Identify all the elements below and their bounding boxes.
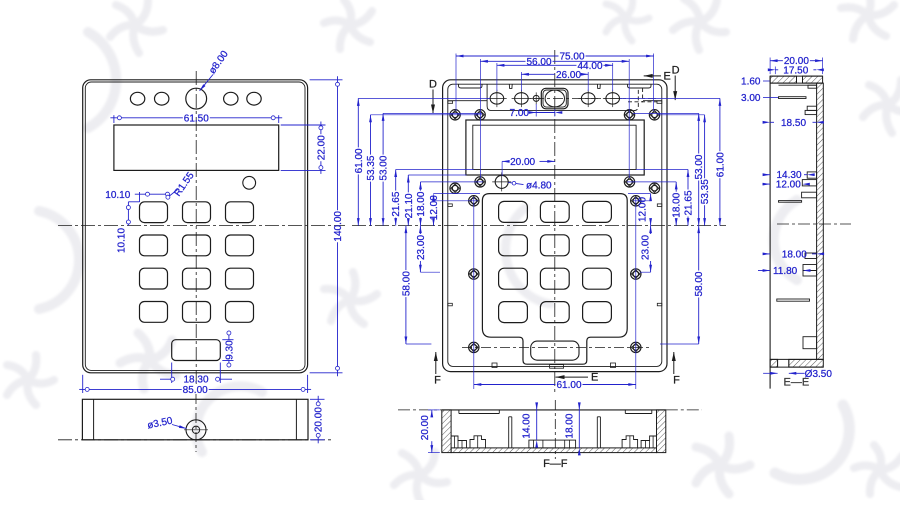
- svg-text:18.00: 18.00: [416, 191, 427, 216]
- svg-text:E—E: E—E: [784, 377, 810, 389]
- svg-text:26.00: 26.00: [556, 70, 581, 81]
- svg-text:9.30: 9.30: [224, 340, 235, 360]
- svg-text:12.00: 12.00: [776, 180, 801, 191]
- svg-text:44.00: 44.00: [577, 61, 602, 72]
- svg-text:20.00: 20.00: [420, 415, 431, 440]
- svg-text:18.50: 18.50: [781, 118, 806, 129]
- svg-text:D: D: [429, 78, 437, 90]
- svg-text:21.10: 21.10: [404, 193, 415, 218]
- svg-text:61.50: 61.50: [184, 113, 209, 124]
- svg-text:61.00: 61.00: [556, 380, 581, 391]
- svg-text:21.65: 21.65: [391, 191, 402, 216]
- svg-text:ø4.80: ø4.80: [526, 180, 552, 191]
- svg-text:22.00: 22.00: [316, 135, 327, 160]
- svg-text:7.00: 7.00: [510, 108, 530, 119]
- svg-text:53.35: 53.35: [366, 155, 377, 180]
- svg-text:56.00: 56.00: [526, 57, 551, 68]
- svg-text:10.10: 10.10: [105, 190, 130, 201]
- svg-text:18.00: 18.00: [565, 413, 576, 438]
- svg-text:53.00: 53.00: [379, 155, 390, 180]
- svg-text:20.00: 20.00: [510, 157, 535, 168]
- svg-text:61.00: 61.00: [354, 148, 365, 173]
- svg-text:F—F: F—F: [543, 458, 568, 470]
- svg-text:58.00: 58.00: [401, 271, 412, 296]
- svg-text:58.00: 58.00: [694, 271, 705, 296]
- svg-text:53.00: 53.00: [694, 154, 705, 179]
- svg-text:F: F: [673, 375, 680, 387]
- svg-text:11.80: 11.80: [773, 266, 798, 277]
- svg-text:61.00: 61.00: [715, 152, 726, 177]
- svg-text:12.00: 12.00: [638, 197, 649, 222]
- svg-text:17.50: 17.50: [783, 65, 808, 76]
- svg-text:21.65: 21.65: [684, 190, 695, 215]
- svg-text:E: E: [591, 372, 598, 384]
- svg-text:23.00: 23.00: [416, 235, 427, 260]
- svg-text:140.00: 140.00: [333, 211, 344, 242]
- svg-text:12.00: 12.00: [429, 195, 440, 220]
- svg-text:53.35: 53.35: [700, 179, 711, 204]
- svg-text:20.00: 20.00: [314, 407, 325, 432]
- svg-text:3.00: 3.00: [741, 93, 761, 104]
- svg-text:10.10: 10.10: [117, 228, 128, 253]
- svg-text:14.00: 14.00: [522, 413, 533, 438]
- svg-text:18.00: 18.00: [782, 249, 807, 260]
- svg-text:F: F: [434, 375, 441, 387]
- svg-text:E: E: [664, 71, 671, 83]
- svg-text:D: D: [672, 65, 680, 77]
- svg-text:18.00: 18.00: [672, 192, 683, 217]
- svg-text:1.60: 1.60: [741, 76, 761, 87]
- svg-text:23.00: 23.00: [640, 235, 651, 260]
- svg-text:85.00: 85.00: [183, 385, 208, 396]
